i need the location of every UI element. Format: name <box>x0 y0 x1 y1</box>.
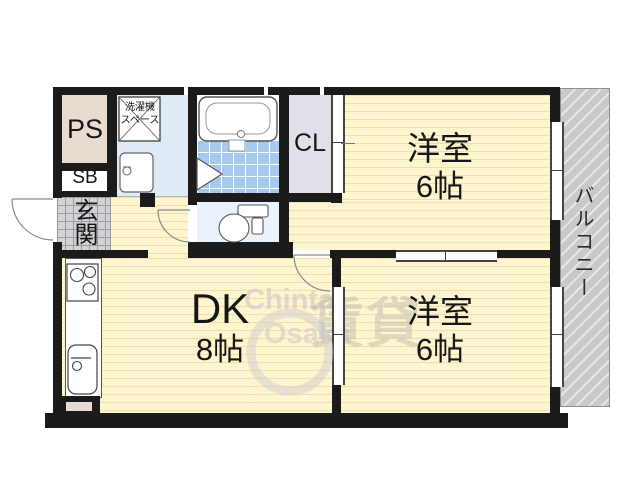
wall-segment <box>550 387 560 413</box>
wall-segment <box>332 385 341 413</box>
wall-segment <box>188 242 293 258</box>
entrance-door-arc <box>12 199 53 240</box>
room-western-top-floor-extension <box>289 202 550 250</box>
laundry-line2: スペース <box>117 114 163 127</box>
dk-name: DK <box>120 288 320 330</box>
bathroom-tile-floor <box>197 140 279 193</box>
bathroom-upper <box>197 95 279 140</box>
wall-segment <box>188 193 342 202</box>
western-bottom-size: 6帖 <box>340 334 540 365</box>
toilet-room-floor <box>197 202 279 242</box>
wall-segment <box>53 242 62 413</box>
wall-segment <box>53 87 560 95</box>
ps-label: PS <box>62 116 108 143</box>
balcony-window-bottom <box>550 287 564 387</box>
wall-segment <box>279 87 289 258</box>
wall-segment <box>550 87 560 122</box>
kitchen-counter <box>65 258 102 398</box>
western-top-size: 6帖 <box>340 171 540 202</box>
bottom-wall-inset <box>66 402 92 411</box>
wall-segment <box>53 191 110 197</box>
shoebox-label: SB <box>62 168 108 187</box>
laundry-space-label: 洗濯機 スペース <box>117 101 163 127</box>
dk-size: 8帖 <box>120 334 320 365</box>
wall-segment <box>188 87 197 205</box>
western-bottom-name: 洋室 <box>340 295 540 328</box>
balcony-window-top <box>550 122 564 220</box>
interior-window <box>396 250 497 262</box>
wall-segment <box>53 87 62 198</box>
genkan-step-line <box>110 197 111 250</box>
wall-segment <box>53 250 148 258</box>
wall-segment <box>107 87 117 197</box>
wall-segment <box>330 250 396 258</box>
balcony-label: バルコニー <box>572 185 592 350</box>
wall-segment <box>497 250 560 258</box>
western-top-name: 洋室 <box>340 132 540 165</box>
wall-segment <box>45 413 568 428</box>
wall-joint <box>264 87 268 95</box>
floorplan: Chintai Osaka 賃貸 <box>0 0 640 480</box>
genkan-label: 玄関 <box>71 198 95 252</box>
wall-segment <box>140 193 155 207</box>
closet-label: CL <box>287 131 333 156</box>
wall-joint <box>320 87 324 95</box>
wall-joint <box>184 87 188 95</box>
laundry-line1: 洗濯機 <box>117 101 163 114</box>
